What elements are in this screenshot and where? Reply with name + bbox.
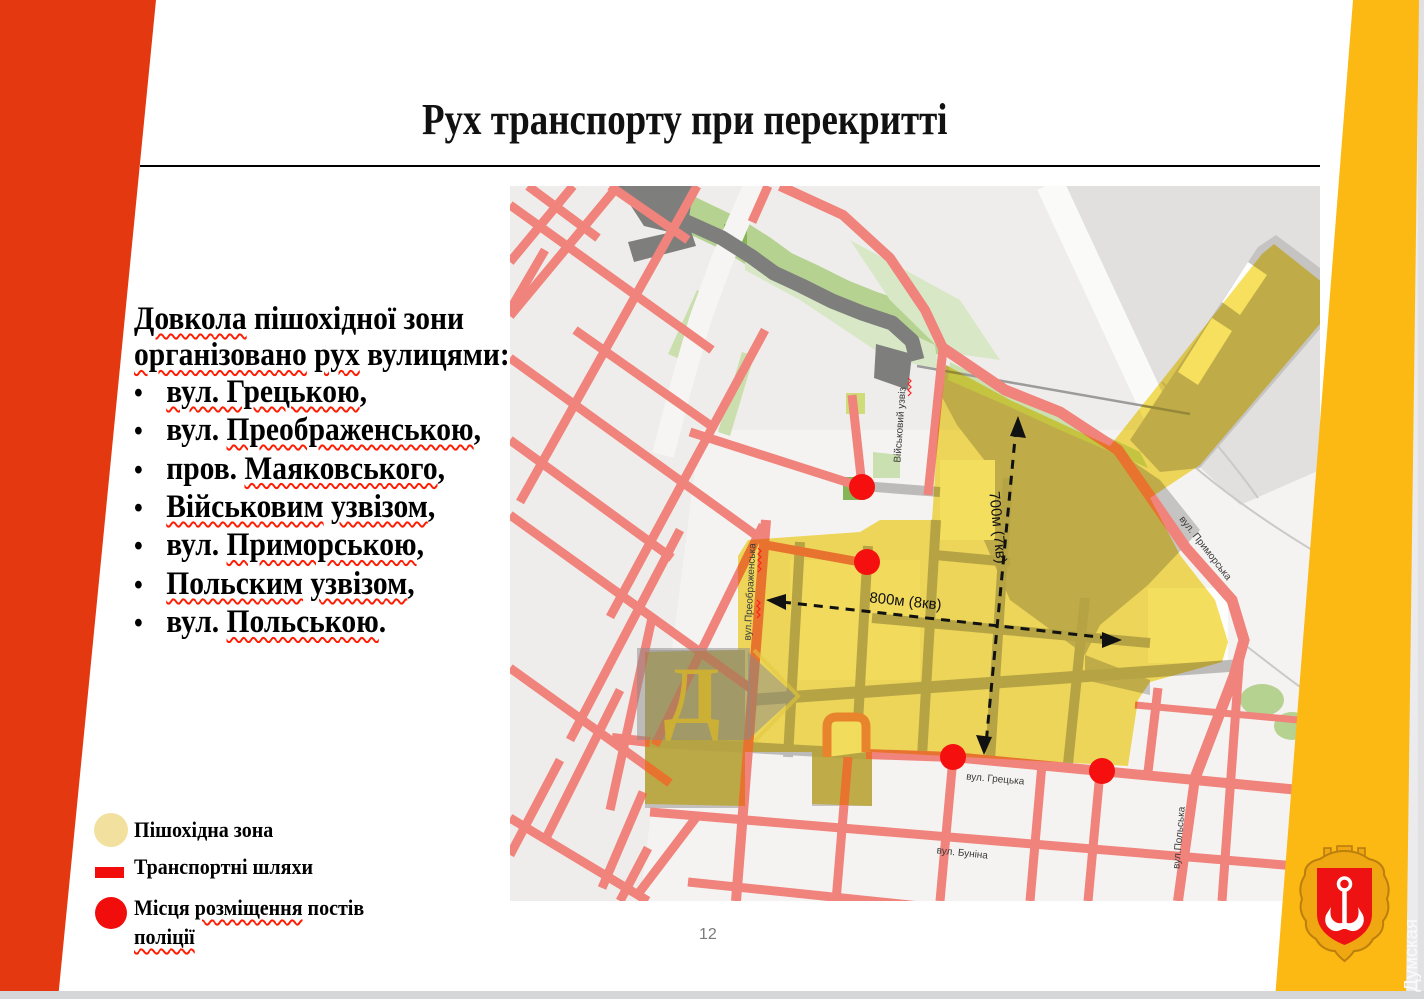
svg-text:Д: Д (664, 650, 720, 741)
